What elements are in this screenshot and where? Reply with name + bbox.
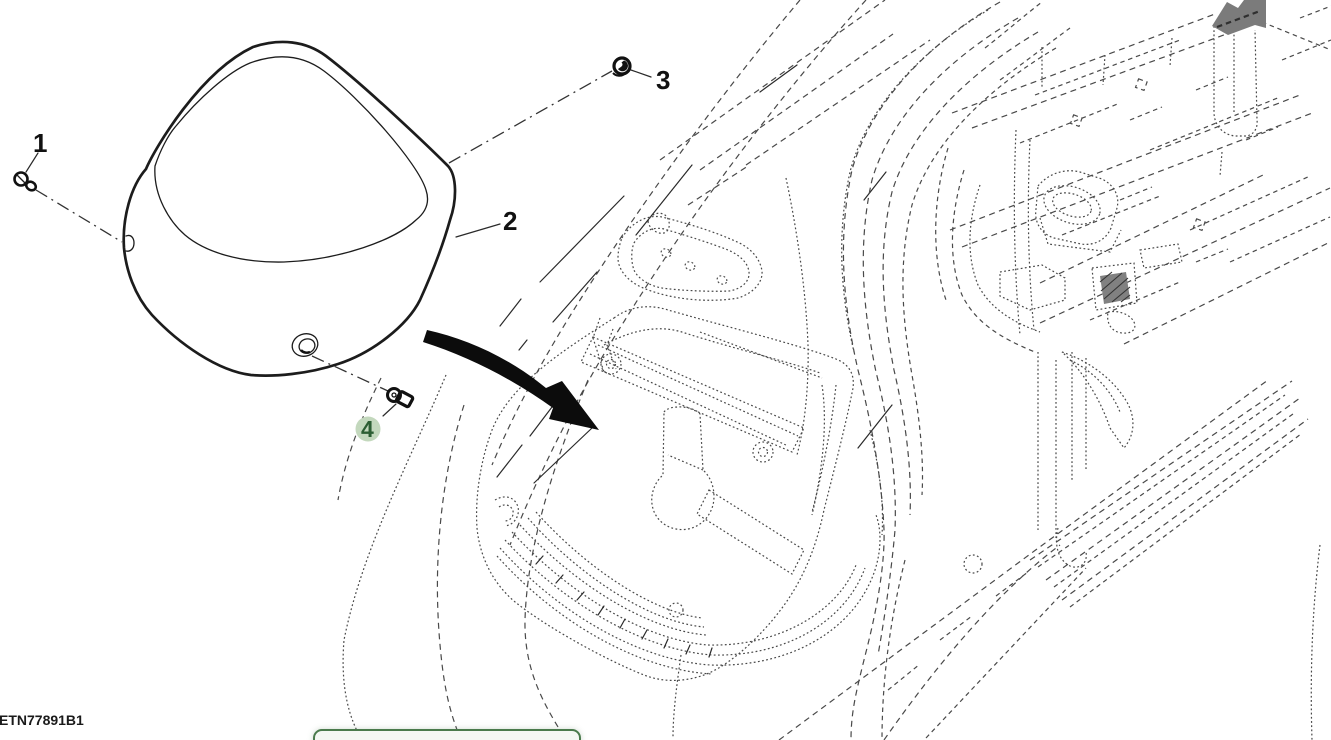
svg-text:3: 3 (656, 65, 670, 95)
svg-text:1: 1 (33, 128, 47, 158)
svg-text:4: 4 (361, 416, 374, 442)
svg-text:2: 2 (503, 206, 517, 236)
